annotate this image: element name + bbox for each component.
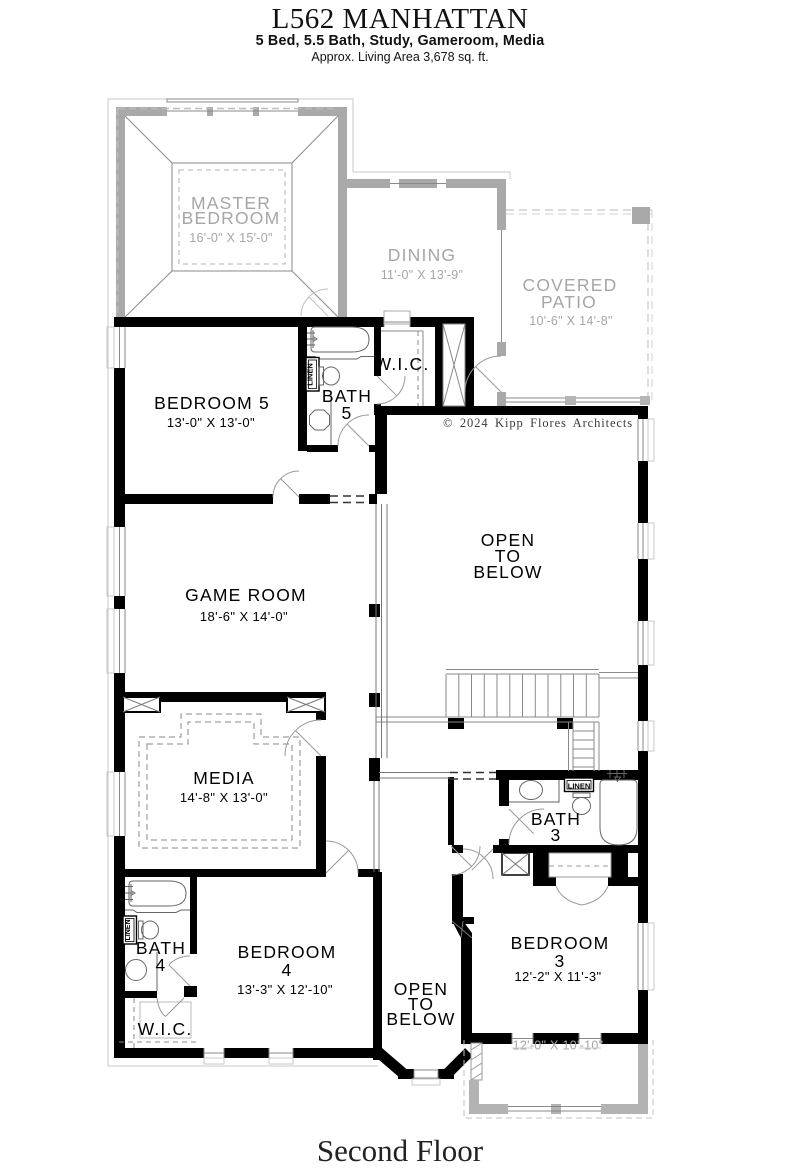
svg-text:W.I.C.: W.I.C.	[138, 1019, 193, 1039]
svg-text:3: 3	[555, 951, 566, 971]
svg-text:4: 4	[156, 955, 167, 975]
svg-text:14'-8" X 13'-0": 14'-8" X 13'-0"	[180, 790, 268, 805]
svg-text:GAME ROOM: GAME ROOM	[185, 585, 307, 605]
svg-text:BEDROOM 5: BEDROOM 5	[154, 393, 270, 413]
svg-text:BELOW: BELOW	[386, 1009, 455, 1029]
svg-text:Approx. Living Area 3,678 sq.: Approx. Living Area 3,678 sq. ft.	[311, 50, 488, 64]
svg-text:12'-0" X 10'-10": 12'-0" X 10'-10"	[513, 1039, 604, 1053]
svg-text:16'-0" X 15'-0": 16'-0" X 15'-0"	[189, 231, 272, 245]
svg-text:LINEN: LINEN	[306, 363, 315, 386]
svg-text:© 2024 Kipp Flores Architects: © 2024 Kipp Flores Architects	[443, 416, 633, 430]
svg-text:BEDROOM: BEDROOM	[511, 933, 610, 953]
svg-text:4: 4	[282, 960, 293, 980]
svg-text:DINING: DINING	[388, 245, 456, 265]
svg-text:BEDROOM: BEDROOM	[182, 208, 281, 228]
svg-text:MEDIA: MEDIA	[193, 768, 254, 788]
svg-text:BEDROOM: BEDROOM	[238, 942, 337, 962]
svg-text:PATIO: PATIO	[541, 292, 597, 312]
svg-text:W.I.C.: W.I.C.	[375, 354, 430, 374]
svg-text:10'-6" X 14'-8": 10'-6" X 14'-8"	[529, 314, 612, 328]
svg-text:3: 3	[551, 825, 562, 845]
svg-text:LINEN: LINEN	[125, 920, 132, 941]
svg-text:5 Bed, 5.5 Bath, Study, Gamero: 5 Bed, 5.5 Bath, Study, Gameroom, Media	[256, 33, 546, 49]
svg-text:BELOW: BELOW	[473, 562, 542, 582]
svg-text:Second Floor: Second Floor	[317, 1133, 484, 1168]
svg-text:11'-0" X 13'-9": 11'-0" X 13'-9"	[381, 268, 464, 282]
svg-text:L562 MANHATTAN: L562 MANHATTAN	[272, 3, 529, 35]
svg-text:13'-3" X 12'-10": 13'-3" X 12'-10"	[237, 982, 333, 997]
svg-text:LINEN: LINEN	[568, 782, 591, 791]
svg-text:12'-2" X 11'-3": 12'-2" X 11'-3"	[514, 969, 601, 984]
svg-text:5: 5	[342, 403, 353, 423]
svg-text:18'-6" X 14'-0": 18'-6" X 14'-0"	[200, 609, 288, 624]
svg-text:13'-0" X 13'-0": 13'-0" X 13'-0"	[167, 415, 255, 430]
